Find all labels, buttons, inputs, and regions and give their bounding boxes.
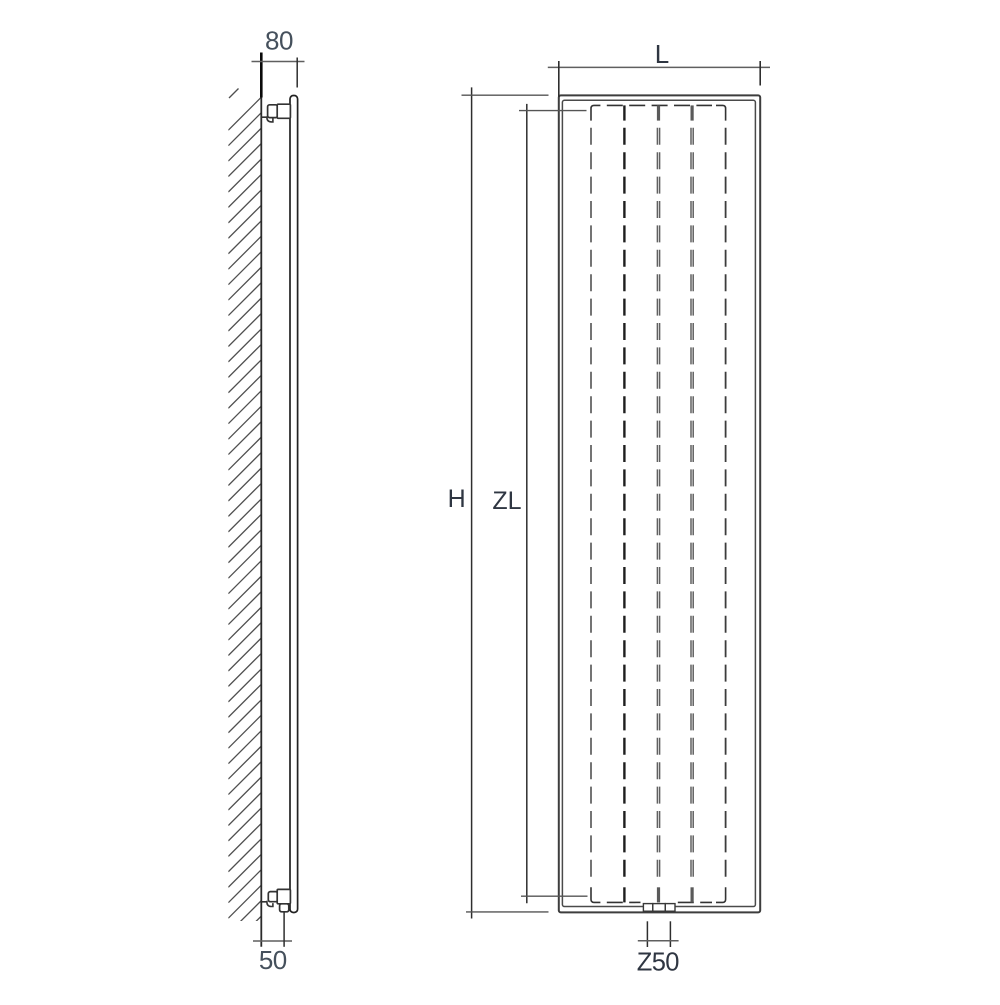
svg-text:H: H: [448, 485, 466, 513]
svg-text:80: 80: [265, 26, 293, 56]
svg-text:L: L: [655, 39, 669, 69]
svg-text:ZL: ZL: [492, 487, 521, 515]
svg-text:Z50: Z50: [637, 948, 680, 976]
svg-text:50: 50: [259, 945, 287, 975]
